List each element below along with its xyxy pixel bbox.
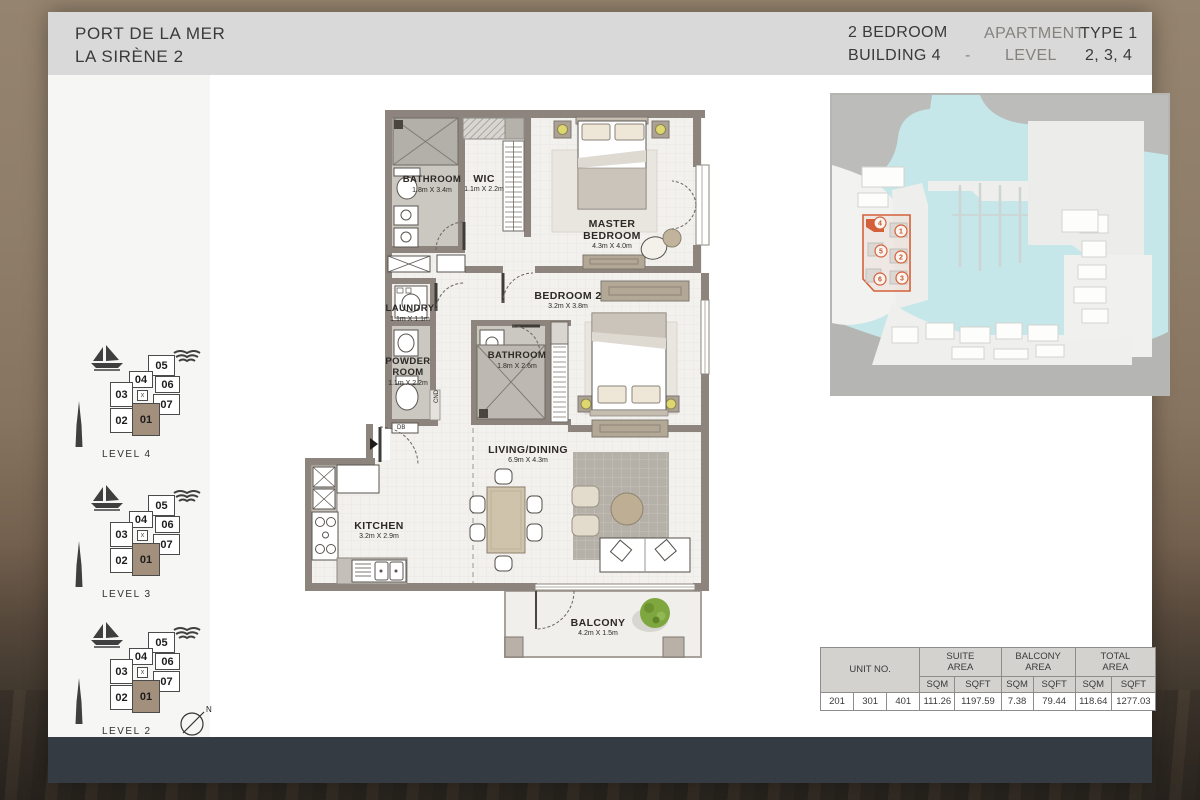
la-sirene-cluster: 4 1 5 2 6 3: [863, 215, 910, 291]
total-area-header: TOTAL AREA: [1075, 648, 1155, 677]
site-map-drawing: 4 1 5 2 6 3: [832, 95, 1168, 394]
unit-type: 2 BEDROOM: [848, 24, 948, 42]
project-title: PORT DE LA MER LA SIRÈNE 2: [75, 22, 225, 69]
total-sqm-header: SQM: [1075, 677, 1111, 693]
apartment-label: APARTMENT: [984, 25, 1085, 43]
unit-cell-06: 06: [155, 516, 180, 533]
unit-cell-03: 03: [110, 522, 133, 547]
room-label-laundry: LAUNDRY 1.1m X 1.1m: [370, 304, 450, 324]
marker-building-6: 6: [878, 277, 882, 284]
burj-tower-icon: [72, 678, 86, 726]
level-caption: LEVEL 3: [102, 589, 152, 600]
room-label-wic: WIC 1.1m X 2.2m: [454, 173, 514, 194]
footer-bar: [48, 737, 1152, 783]
total-sqft-header: SQFT: [1111, 677, 1155, 693]
db-label: DB: [397, 425, 405, 431]
marker-building-4: 4: [878, 221, 882, 228]
unit-cell-01-highlighted: 01: [132, 680, 160, 713]
marker-building-1: 1: [899, 229, 903, 236]
floorplate-diagram: 05 04 06 03 07 02 01 x: [110, 353, 190, 451]
level-3-keyplan: 05 04 06 03 07 02 01 x LEVEL 3: [62, 483, 212, 605]
elevator-core-mark: x: [137, 667, 148, 678]
suite-sqft-value: 1197.59: [955, 693, 1001, 711]
marker-building-2: 2: [899, 255, 903, 262]
burj-tower-icon: [72, 541, 86, 589]
balcony-area-header: BALCONY AREA: [1001, 648, 1075, 677]
level-4-keyplan: 05 04 06 03 07 02 01 x LEVEL 4: [62, 343, 212, 465]
suite-sqm-header: SQM: [920, 677, 955, 693]
unit-401: 401: [887, 693, 920, 711]
unit-cell-06: 06: [155, 376, 180, 393]
total-sqm-value: 118.64: [1075, 693, 1111, 711]
areas-table: UNIT NO. SUITE AREA BALCONY AREA TOTAL A…: [820, 647, 1156, 711]
unit-cell-01-highlighted: 01: [132, 403, 160, 436]
header-strip: PORT DE LA MER LA SIRÈNE 2 2 BEDROOM APA…: [48, 12, 1152, 75]
unit-cell-03: 03: [110, 382, 133, 407]
level-caption: LEVEL 4: [102, 449, 152, 460]
table-row: 201 301 401 111.26 1197.59 7.38 79.44 11…: [821, 693, 1156, 711]
unit-cell-02: 02: [110, 408, 133, 433]
building-name: LA SIRÈNE 2: [75, 45, 225, 68]
room-label-living-dining: LIVING/DINING 6.9m X 4.3m: [468, 444, 588, 465]
page-sheet: PORT DE LA MER LA SIRÈNE 2 2 BEDROOM APA…: [48, 12, 1152, 783]
bathroom-2: [477, 326, 545, 419]
level-values: 2, 3, 4: [1085, 47, 1132, 65]
floor-plan: BATHROOM 1.8m X 3.4m WIC 1.1m X 2.2m MAS…: [295, 105, 725, 670]
level-caption: LEVEL 2: [102, 726, 152, 737]
burj-tower-icon: [72, 401, 86, 449]
floorplate-diagram: 05 04 06 03 07 02 01 x: [110, 493, 190, 591]
cnd-label: CND: [434, 390, 440, 403]
compass-icon: N: [178, 704, 212, 738]
level-2-keyplan: 05 04 06 03 07 02 01 x LEVEL 2 N: [62, 620, 212, 742]
unit-no-header: UNIT NO.: [821, 648, 920, 693]
suite-area-header: SUITE AREA: [920, 648, 1001, 677]
suite-sqft-header: SQFT: [955, 677, 1001, 693]
room-label-powder-room: POWDER ROOM 1.1m X 2.2m: [379, 357, 437, 388]
balcony-sqm-header: SQM: [1001, 677, 1033, 693]
balcony-sqm-value: 7.38: [1001, 693, 1033, 711]
unit-cell-01-highlighted: 01: [132, 543, 160, 576]
site-map: 4 1 5 2 6 3: [830, 93, 1170, 396]
total-sqft-value: 1277.03: [1111, 693, 1155, 711]
elevator-core-mark: x: [137, 530, 148, 541]
room-label-bedroom-2: BEDROOM 2 3.2m X 3.8m: [513, 290, 623, 311]
separator: -: [965, 47, 971, 65]
unit-301: 301: [854, 693, 887, 711]
brochure-page: PORT DE LA MER LA SIRÈNE 2 2 BEDROOM APA…: [0, 0, 1200, 800]
marker-building-3: 3: [900, 276, 904, 283]
room-label-kitchen: KITCHEN 3.2m X 2.9m: [339, 520, 419, 541]
room-label-master-bedroom: MASTER BEDROOM 4.3m X 4.0m: [572, 218, 652, 251]
unit-cell-03: 03: [110, 659, 133, 684]
suite-sqm-value: 111.26: [920, 693, 955, 711]
compass-north-label: N: [206, 705, 212, 714]
level-label: LEVEL: [1005, 47, 1057, 65]
unit-cell-02: 02: [110, 685, 133, 710]
marker-building-5: 5: [879, 249, 883, 256]
unit-cell-06: 06: [155, 653, 180, 670]
room-label-bathroom-2: BATHROOM 1.8m X 2.6m: [477, 351, 557, 371]
balcony-sqft-header: SQFT: [1033, 677, 1075, 693]
building-number: BUILDING 4: [848, 47, 941, 65]
room-label-balcony: BALCONY 4.2m X 1.5m: [558, 617, 638, 638]
unit-201: 201: [821, 693, 854, 711]
bedroom-2-wardrobe: [551, 322, 568, 422]
content-area: 05 04 06 03 07 02 01 x LEVEL 4: [48, 75, 1152, 737]
unit-cell-02: 02: [110, 548, 133, 573]
elevator-core-mark: x: [137, 390, 148, 401]
type-value: TYPE 1: [1080, 25, 1138, 43]
project-name: PORT DE LA MER: [75, 22, 225, 45]
balcony-sqft-value: 79.44: [1033, 693, 1075, 711]
